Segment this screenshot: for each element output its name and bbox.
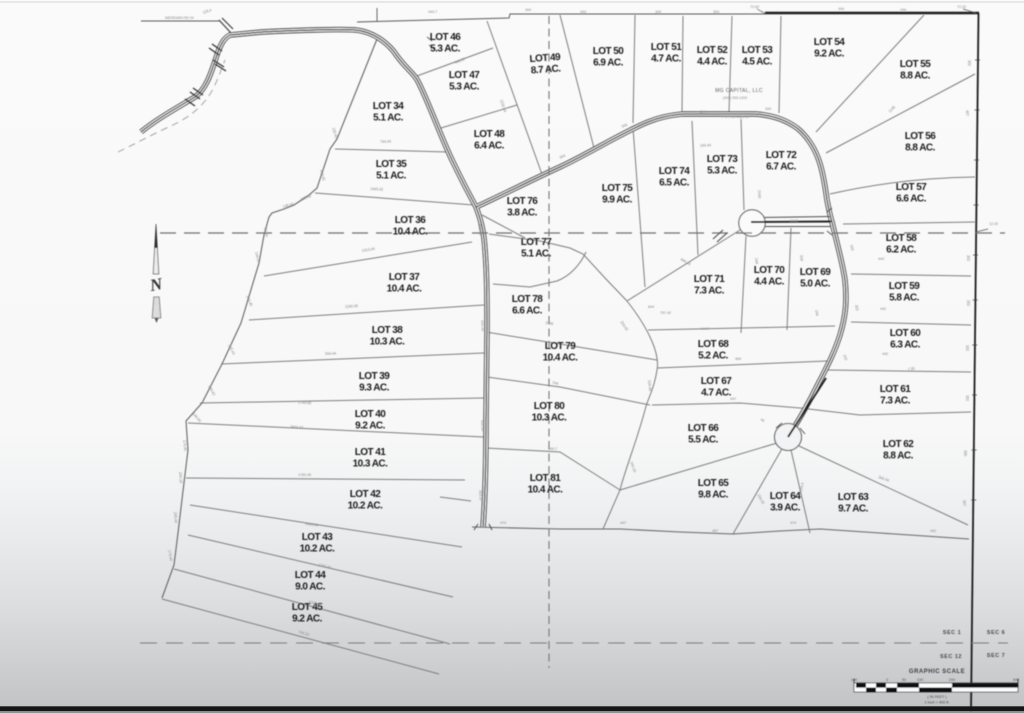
svg-text:LOT 763.8 AC.: LOT 763.8 AC. xyxy=(507,196,539,219)
svg-text:LOT 449.0 AC.: LOT 449.0 AC. xyxy=(295,570,327,593)
svg-text:2440: 2440 xyxy=(757,190,762,199)
svg-text:LOT 643.9 AC.: LOT 643.9 AC. xyxy=(770,491,802,514)
svg-text:LOT 704.4 AC.: LOT 704.4 AC. xyxy=(754,265,786,288)
svg-text:LOT 576.6 AC.: LOT 576.6 AC. xyxy=(896,182,928,205)
svg-text:LOT 659.8 AC.: LOT 659.8 AC. xyxy=(698,478,730,501)
svg-text:244: 244 xyxy=(900,7,907,12)
svg-text:344: 344 xyxy=(765,106,772,111)
svg-text:LOT 4110.3 AC.: LOT 4110.3 AC. xyxy=(353,447,388,470)
svg-text:LOT 4210.2 AC.: LOT 4210.2 AC. xyxy=(348,489,383,512)
svg-text:LOT 549.2 AC.: LOT 549.2 AC. xyxy=(814,37,846,60)
svg-text:LOT 685.2 AC.: LOT 685.2 AC. xyxy=(698,339,730,362)
svg-text:200: 200 xyxy=(949,678,955,682)
svg-text:LOT 3710.4 AC.: LOT 3710.4 AC. xyxy=(387,272,422,295)
svg-text:LOT 524.4 AC.: LOT 524.4 AC. xyxy=(697,45,729,68)
svg-text:SEC 1: SEC 1 xyxy=(943,630,961,636)
svg-text:LOT 568.8 AC.: LOT 568.8 AC. xyxy=(905,131,937,154)
svg-text:100: 100 xyxy=(917,678,923,682)
svg-text:LOT 786.6 AC.: LOT 786.6 AC. xyxy=(512,294,544,317)
svg-text:3444.42: 3444.42 xyxy=(290,424,304,430)
svg-text:344: 344 xyxy=(700,109,707,114)
svg-text:447: 447 xyxy=(730,396,737,401)
svg-text:LOT 475.3 AC.: LOT 475.3 AC. xyxy=(449,70,481,93)
svg-text:1744.58: 1744.58 xyxy=(298,400,312,405)
svg-text:304: 304 xyxy=(713,9,720,14)
svg-text:(408) 555-1900: (408) 555-1900 xyxy=(723,96,748,100)
svg-text:LOT 355.1 AC.: LOT 355.1 AC. xyxy=(376,159,408,182)
svg-text:LOT 586.2 AC.: LOT 586.2 AC. xyxy=(886,233,918,256)
svg-text:344: 344 xyxy=(525,7,532,12)
svg-text:2440: 2440 xyxy=(790,218,799,223)
svg-text:LOT 639.7 AC.: LOT 639.7 AC. xyxy=(838,492,870,515)
svg-text:442: 442 xyxy=(882,351,889,356)
svg-text:100: 100 xyxy=(851,678,857,682)
svg-text:474: 474 xyxy=(500,520,507,525)
svg-text:344: 344 xyxy=(838,6,845,11)
svg-text:844: 844 xyxy=(648,304,655,309)
svg-text:PVT RD 4425 W: PVT RD 4425 W xyxy=(722,114,749,119)
svg-text:72.42: 72.42 xyxy=(957,4,967,9)
svg-text:LOT 8110.4 AC.: LOT 8110.4 AC. xyxy=(528,473,563,496)
svg-text:344: 344 xyxy=(655,9,662,14)
svg-text:( IN FEET ): ( IN FEET ) xyxy=(927,695,947,699)
svg-text:SEC 7: SEC 7 xyxy=(987,653,1005,659)
svg-text:SEC 12: SEC 12 xyxy=(940,654,962,660)
svg-text:464: 464 xyxy=(735,356,742,361)
svg-text:LOT 8010.3 AC.: LOT 8010.3 AC. xyxy=(532,401,567,424)
svg-text:LOT 759.9 AC.: LOT 759.9 AC. xyxy=(602,183,634,206)
svg-text:LOT 735.3 AC.: LOT 735.3 AC. xyxy=(707,154,739,177)
svg-text:1340.45: 1340.45 xyxy=(345,303,359,309)
svg-text:LOT 558.8 AC.: LOT 558.8 AC. xyxy=(900,59,932,82)
svg-text:LOT 4310.2 AC.: LOT 4310.2 AC. xyxy=(300,532,335,555)
svg-text:LOT 746.5 AC.: LOT 746.5 AC. xyxy=(659,166,691,189)
svg-text:245.44: 245.44 xyxy=(173,512,179,524)
svg-text:12.42: 12.42 xyxy=(989,221,999,226)
svg-text:LOT 628.8 AC.: LOT 628.8 AC. xyxy=(883,439,915,462)
svg-text:LOT 409.2 AC.: LOT 409.2 AC. xyxy=(355,409,387,432)
svg-text:744.44: 744.44 xyxy=(380,139,392,144)
svg-text:LOT 345.1 AC.: LOT 345.1 AC. xyxy=(373,101,405,124)
svg-text:LOT 665.5 AC.: LOT 665.5 AC. xyxy=(688,423,720,446)
svg-text:244.44: 244.44 xyxy=(700,142,712,148)
svg-text:LOT 399.3 AC.: LOT 399.3 AC. xyxy=(359,371,391,394)
svg-text:SEC 6: SEC 6 xyxy=(987,630,1005,636)
svg-text:444.7: 444.7 xyxy=(700,326,710,331)
svg-text:442: 442 xyxy=(880,306,887,311)
svg-text:LOT 606.3 AC.: LOT 606.3 AC. xyxy=(890,328,922,351)
svg-text:LOT 498.7 AC.: LOT 498.7 AC. xyxy=(529,52,562,77)
svg-text:0: 0 xyxy=(886,678,888,682)
svg-text:757.42: 757.42 xyxy=(660,310,672,315)
svg-text:443: 443 xyxy=(580,9,587,14)
svg-text:454.44: 454.44 xyxy=(480,420,485,432)
svg-text:442: 442 xyxy=(930,528,937,533)
svg-text:444: 444 xyxy=(878,256,885,261)
svg-text:LOT 3810.3 AC.: LOT 3810.3 AC. xyxy=(370,325,405,348)
svg-text:LOT 695.0 AC.: LOT 695.0 AC. xyxy=(800,267,832,290)
svg-text:474: 474 xyxy=(790,520,797,525)
svg-text:LOT 486.4 AC.: LOT 486.4 AC. xyxy=(474,129,506,152)
svg-text:454.47: 454.47 xyxy=(478,490,483,502)
svg-text:944.44: 944.44 xyxy=(325,351,337,356)
svg-text:GRAPHIC SCALE: GRAPHIC SCALE xyxy=(909,669,965,675)
svg-text:LOT 726.7 AC.: LOT 726.7 AC. xyxy=(766,150,798,173)
svg-text:LOT 674.7 AC.: LOT 674.7 AC. xyxy=(701,376,733,399)
svg-text:LOT 514.7 AC.: LOT 514.7 AC. xyxy=(651,42,683,65)
svg-text:LOT 3610.4 AC.: LOT 3610.4 AC. xyxy=(393,215,428,238)
svg-text:MG CAPITAL, LLC: MG CAPITAL, LLC xyxy=(715,88,763,94)
svg-text:244.18: 244.18 xyxy=(178,472,184,484)
svg-text:154.44: 154.44 xyxy=(647,380,653,392)
svg-text:LOT 717.3 AC.: LOT 717.3 AC. xyxy=(694,274,726,297)
svg-text:LOT 595.8 AC.: LOT 595.8 AC. xyxy=(889,281,921,304)
svg-text:LOT 534.5 AC.: LOT 534.5 AC. xyxy=(742,45,774,68)
svg-text:50: 50 xyxy=(902,678,906,682)
svg-text:1445.42: 1445.42 xyxy=(370,186,384,192)
svg-text:72.62: 72.62 xyxy=(750,4,760,9)
svg-text:944.7: 944.7 xyxy=(548,446,558,451)
svg-text:LOT 7910.4 AC.: LOT 7910.4 AC. xyxy=(543,341,578,364)
svg-text:LOT 506.9 AC.: LOT 506.9 AC. xyxy=(593,46,625,69)
svg-text:LOT 775.1 AC.: LOT 775.1 AC. xyxy=(521,237,553,260)
svg-text:1 inch = 400 ft.: 1 inch = 400 ft. xyxy=(924,701,949,705)
svg-text:1782.45: 1782.45 xyxy=(298,472,312,477)
svg-text:444.44: 444.44 xyxy=(480,320,485,332)
svg-text:MERIDIAN RD W: MERIDIAN RD W xyxy=(165,15,194,20)
svg-text:LOT 465.3 AC.: LOT 465.3 AC. xyxy=(430,32,462,55)
svg-text:LOT 617.3 AC.: LOT 617.3 AC. xyxy=(880,384,912,407)
svg-text:457: 457 xyxy=(712,528,719,533)
svg-text:400: 400 xyxy=(1013,678,1019,682)
svg-text:447: 447 xyxy=(620,520,627,525)
svg-text:443.7: 443.7 xyxy=(428,9,438,14)
